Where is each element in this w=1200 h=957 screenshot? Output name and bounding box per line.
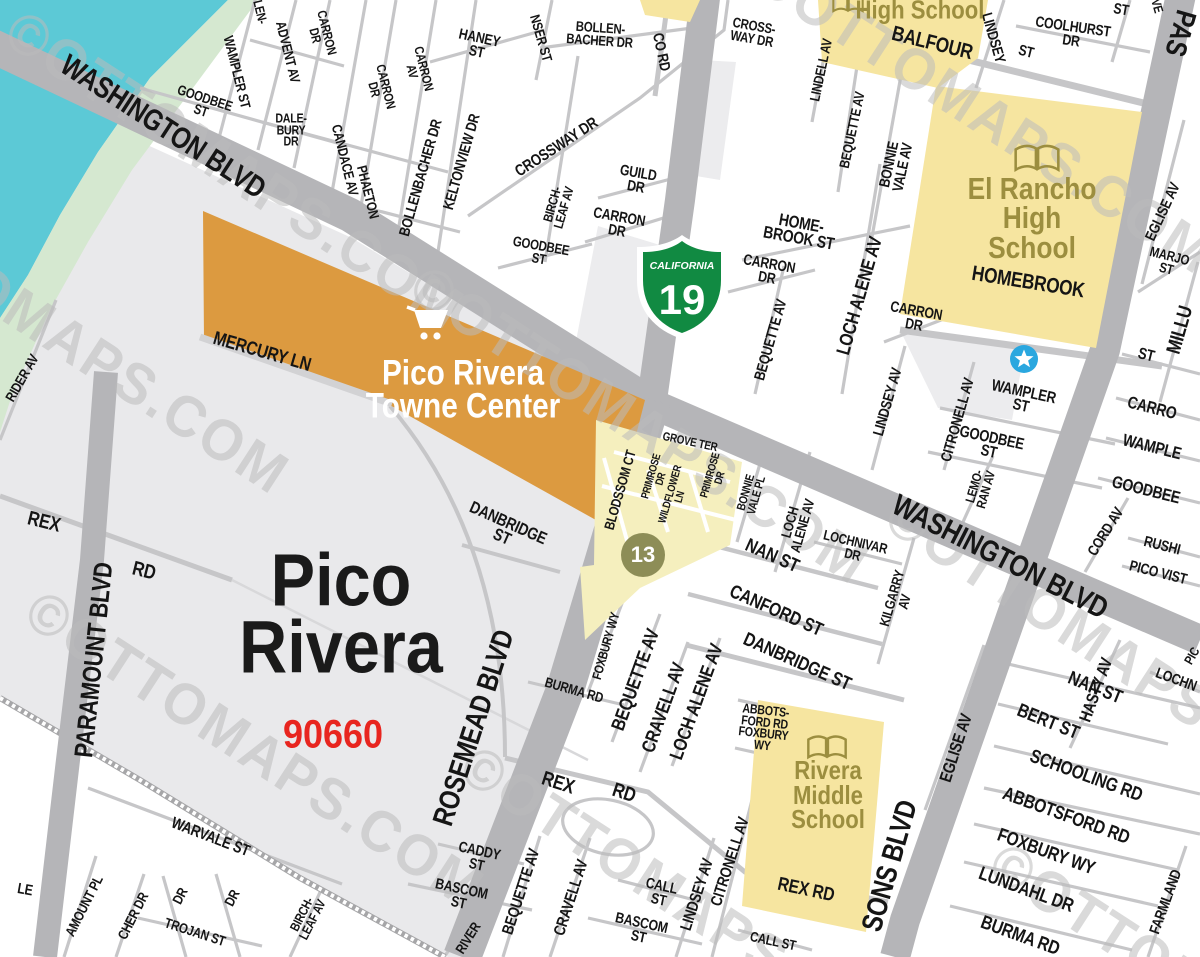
highlight-street-area [580,420,742,640]
map-base-svg [0,0,1200,957]
map-canvas[interactable]: ©OTTOMAPS.COM ©OTTOMAPS.COM ©OTTOMAPS.CO… [0,0,1200,957]
rivera-middle-school-area [742,700,884,932]
top-school-area-2 [640,0,700,22]
top-school-area [818,0,988,88]
